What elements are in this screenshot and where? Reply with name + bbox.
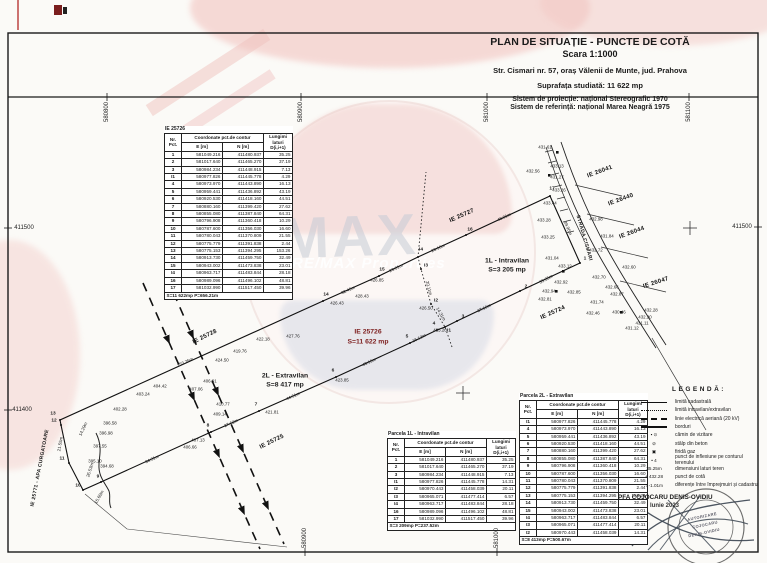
table-cell: 411436.892 xyxy=(578,433,619,440)
table-cell: 411465.270 xyxy=(223,159,264,166)
table-row: 3580984.234411448.9157.13 xyxy=(165,166,293,173)
coord-table-1l-title: Parcela 1L - Intravilan xyxy=(388,431,516,437)
table-row: 1581049.216411480.93735.25 xyxy=(165,151,293,158)
table-row: 8580855.080411387.84064.31 xyxy=(165,211,293,218)
table-cell: 411360.418 xyxy=(578,463,619,470)
table-row: 17581032.990411517.45039.96 xyxy=(165,285,293,292)
table-cell: 4.29 xyxy=(264,174,293,181)
coord-table-1l: Parcela 1L - Intravilan Nr. Pct. Coordon… xyxy=(387,431,516,531)
table-cell: 411391.838 xyxy=(223,240,264,247)
table-row: 10580787.600411356.03016.60 xyxy=(520,470,648,477)
leader-line xyxy=(85,494,287,547)
table-row: I4580963.717411483.84428.18 xyxy=(388,501,516,508)
table-cell: 580970.443 xyxy=(405,486,446,493)
table-cell: 580973.970 xyxy=(537,426,578,433)
table-cell: 411387.840 xyxy=(578,455,619,462)
table-cell: 3 xyxy=(388,471,405,478)
table-cell: 411473.838 xyxy=(223,262,264,269)
coord-table: Nr. Pct. Coordonate pct.de contur Lungim… xyxy=(519,400,648,545)
table-cell: 411391.838 xyxy=(578,485,619,492)
col-header-nr: Nr. Pct. xyxy=(165,134,182,152)
legend-symbol-solid-icon xyxy=(636,402,672,403)
table-cell: 6.57 xyxy=(487,493,516,500)
table-cell: 411436.892 xyxy=(223,188,264,195)
table-row: 1581049.216411480.93735.25 xyxy=(388,456,516,463)
table-row: 17581032.990411517.45039.96 xyxy=(388,516,516,523)
table-cell: 16.60 xyxy=(264,225,293,232)
table-cell: 411394.295 xyxy=(223,248,264,255)
table-cell: I4 xyxy=(388,501,405,508)
table-cell: 580963.717 xyxy=(182,270,223,277)
col-header-lung: Lungimi laturi D(i,i+1) xyxy=(487,439,516,457)
legend-symbol-text-icon: ▣ xyxy=(636,449,672,455)
legend-item-label: dimensiuni laturi teren xyxy=(672,466,724,472)
col-header-lung: Lungimi laturi D(i,i+1) xyxy=(264,134,293,152)
coord-table-main: IE 25726 Nr. Pct. Coordonate pct.de cont… xyxy=(164,126,293,300)
table-row: 6580920.530411418.16044.51 xyxy=(520,441,648,448)
table-cell: 35.25 xyxy=(264,151,293,158)
coord-table: Nr. Pct. Coordonate pct.de contur Lungim… xyxy=(164,133,293,300)
table-row: I3580965.071411477.4146.57 xyxy=(388,493,516,500)
table-cell: 411399.420 xyxy=(223,203,264,210)
table-cell: 580796.908 xyxy=(182,218,223,225)
table-cell: 35.25 xyxy=(487,456,516,463)
table-row: I1580977.826411445.77814.31 xyxy=(388,479,516,486)
legend-item-label: punct de inflexiune pe conturul terenulu… xyxy=(672,454,762,466)
table-cell: 580977.826 xyxy=(182,174,223,181)
col-header-coord: Coordonate pct.de contur xyxy=(405,439,487,448)
table-cell: 580775.779 xyxy=(537,485,578,492)
table-cell: 411483.844 xyxy=(223,270,264,277)
legend-title: LEGENDĂ: xyxy=(636,386,762,393)
legend-symbol-text-icon: ⊘ xyxy=(636,441,672,447)
scan-edge-mark xyxy=(17,0,19,30)
table-cell: 28.18 xyxy=(487,501,516,508)
table-cell: 7.13 xyxy=(487,471,516,478)
table-cell: 580913.730 xyxy=(537,500,578,507)
plan-title: PLAN DE SITUAȚIE - PUNCTE DE COTĂ xyxy=(420,36,760,48)
table-cell: 11 xyxy=(520,478,537,485)
table-cell: 48.81 xyxy=(264,277,293,284)
table-cell: 411496.102 xyxy=(223,277,264,284)
table-cell: 411370.809 xyxy=(223,233,264,240)
table-cell: 411448.915 xyxy=(446,471,487,478)
table-cell: I1 xyxy=(388,479,405,486)
table-cell: 21.55 xyxy=(264,233,293,240)
table-cell: 411443.890 xyxy=(223,181,264,188)
table-cell: 2.44 xyxy=(264,240,293,247)
table-row: 8580855.080411387.84064.31 xyxy=(520,455,648,462)
table-cell: 580775.779 xyxy=(182,240,223,247)
table-cell: 580977.826 xyxy=(537,418,578,425)
table-cell: 411448.915 xyxy=(223,166,264,173)
intravilan-divider xyxy=(418,172,452,347)
legend-item-label: punct de cotă xyxy=(672,474,705,480)
table-row: 11580780.043411370.80921.55 xyxy=(520,478,648,485)
table-cell: 580943.002 xyxy=(182,262,223,269)
col-header-e: E [m] xyxy=(182,142,223,151)
coord-table-2l-title: Parcela 2L - Extravilan xyxy=(520,393,648,399)
table-cell: 23.01 xyxy=(619,507,648,514)
table-cell: 6 xyxy=(520,441,537,448)
table-cell: 16 xyxy=(388,508,405,515)
power-line xyxy=(143,278,284,549)
table-cell: 10 xyxy=(520,470,537,477)
table-cell: 580959.441 xyxy=(182,188,223,195)
table-cell: 27.62 xyxy=(264,203,293,210)
table-cell: 411459.750 xyxy=(223,255,264,262)
table-cell: 580775.153 xyxy=(182,248,223,255)
table-cell: 411458.039 xyxy=(578,529,619,536)
curb-hatch xyxy=(545,150,574,233)
table-cell: 7.13 xyxy=(264,166,293,173)
surveyor-name: PFA COJOCARU DENIS-OVIDIU xyxy=(618,494,713,501)
table-cell: 411445.778 xyxy=(578,418,619,425)
table-cell: 580855.080 xyxy=(182,211,223,218)
table-cell: 5 xyxy=(165,188,182,195)
table-cell: 14 xyxy=(165,255,182,262)
table-cell: 580880.160 xyxy=(182,203,223,210)
table-row: I1580977.826411445.7784.29 xyxy=(165,174,293,181)
table-cell: I1 xyxy=(520,418,537,425)
legend-item-label: limită intravilan/extravilan xyxy=(672,407,731,413)
table-cell: 6.57 xyxy=(619,515,648,522)
table-cell: 580780.043 xyxy=(182,233,223,240)
table-row: 3580984.234411448.9157.13 xyxy=(388,471,516,478)
table-row: I2580970.443411458.03920.11 xyxy=(388,486,516,493)
table-cell: 580855.080 xyxy=(537,455,578,462)
table-cell: 411496.102 xyxy=(446,508,487,515)
table-cell: I4 xyxy=(165,270,182,277)
table-cell: 1 xyxy=(165,151,182,158)
table-cell: 411360.418 xyxy=(223,218,264,225)
plan-area: Suprafața studiată: 11 622 mp xyxy=(420,81,760,90)
table-cell: 581017.640 xyxy=(182,159,223,166)
table-row: 13580775.153411394.295153.26 xyxy=(165,248,293,255)
table-cell: 12 xyxy=(165,240,182,247)
table-cell: 2 xyxy=(165,159,182,166)
table-cell: 580920.530 xyxy=(537,441,578,448)
table-cell: 580775.153 xyxy=(537,492,578,499)
table-cell: I3 xyxy=(520,522,537,529)
table-cell: 15 xyxy=(165,262,182,269)
table-footer: S=3 209mp P=237.52m xyxy=(388,523,516,530)
table-cell: 64.31 xyxy=(264,211,293,218)
legend-item-label: borduri xyxy=(672,424,691,430)
table-row: 15580943.002411473.83823.01 xyxy=(520,507,648,514)
table-cell: 411465.270 xyxy=(446,464,487,471)
table-cell: 580913.730 xyxy=(182,255,223,262)
table-cell: 411445.778 xyxy=(223,174,264,181)
table-row: 7580880.160411399.42027.62 xyxy=(520,448,648,455)
table-cell: 580977.826 xyxy=(405,479,446,486)
table-cell: 39.96 xyxy=(264,285,293,292)
table-cell: 43.19 xyxy=(264,188,293,195)
table-cell: 581032.990 xyxy=(182,285,223,292)
table-row: 10580787.600411356.03016.60 xyxy=(165,225,293,232)
table-cell: 17 xyxy=(388,516,405,523)
plan-sheet: RE/MAX RE/MAX Properties xyxy=(0,0,767,563)
table-cell: 581049.216 xyxy=(182,151,223,158)
table-cell: I2 xyxy=(520,529,537,536)
table-cell: 39.96 xyxy=(487,516,516,523)
table-cell: 581032.990 xyxy=(405,516,446,523)
table-cell: 2 xyxy=(388,464,405,471)
legend-item-label: diferențe între împrejmuiri și cadastru xyxy=(672,482,758,488)
table-cell: 16.13 xyxy=(264,181,293,188)
table-cell: 411445.778 xyxy=(446,479,487,486)
table-row: I1580977.826411445.7784.29 xyxy=(520,418,648,425)
table-cell: 580787.600 xyxy=(537,470,578,477)
plan-address: Str. Cismari nr. 57, oraș Vălenii de Mun… xyxy=(420,66,760,75)
table-cell: 10 xyxy=(165,225,182,232)
table-cell: 411480.937 xyxy=(446,456,487,463)
legend-item: limită intravilan/extravilan xyxy=(636,406,762,414)
legend-item: + 432.28punct de cotă xyxy=(636,473,762,481)
table-cell: 411458.039 xyxy=(446,486,487,493)
table-cell: 580780.043 xyxy=(537,478,578,485)
table-cell: 20.11 xyxy=(487,486,516,493)
corner-mark-black xyxy=(63,7,67,14)
table-row: I4580963.717411483.84428.18 xyxy=(165,270,293,277)
table-cell: 580959.441 xyxy=(537,433,578,440)
table-cell: 411517.450 xyxy=(446,516,487,523)
table-cell: 580943.002 xyxy=(537,507,578,514)
table-cell: 411483.844 xyxy=(446,501,487,508)
table-cell: 411459.750 xyxy=(578,500,619,507)
legend-symbol-dotted-icon xyxy=(636,410,672,411)
table-cell: 411418.160 xyxy=(223,196,264,203)
table-row: I3580965.071411477.41420.11 xyxy=(520,522,648,529)
table-cell: 11 xyxy=(165,233,182,240)
table-cell: 411418.160 xyxy=(578,441,619,448)
table-cell: 8 xyxy=(165,211,182,218)
table-cell: 9 xyxy=(165,218,182,225)
table-cell: 581049.216 xyxy=(405,456,446,463)
table-cell: 411480.937 xyxy=(223,151,264,158)
col-header-nr: Nr. Pct. xyxy=(388,439,405,457)
table-cell: 44.51 xyxy=(264,196,293,203)
table-cell: I1 xyxy=(165,174,182,181)
legend-item: • 4punct de inflexiune pe conturul teren… xyxy=(636,456,762,464)
table-footer: S=11 622mp P=656.21m xyxy=(165,292,293,299)
table-cell: 411477.414 xyxy=(578,522,619,529)
table-cell: 580984.234 xyxy=(182,166,223,173)
table-cell: I4 xyxy=(520,515,537,522)
col-header-coord: Coordonate pct.de contur xyxy=(537,401,619,410)
table-cell: 16 xyxy=(165,277,182,284)
table-row: 15580943.002411473.83823.01 xyxy=(165,262,293,269)
plan-date: Iunie 2023 xyxy=(650,503,679,509)
table-row: 14580913.730411459.75032.49 xyxy=(165,255,293,262)
col-header-e: E [m] xyxy=(537,409,578,418)
table-row: I4580963.717411483.8446.57 xyxy=(520,515,648,522)
table-cell: 580989.096 xyxy=(405,508,446,515)
table-cell: 48.81 xyxy=(487,508,516,515)
table-cell: 3 xyxy=(165,166,182,173)
legend-item-label: cămin de vizitare xyxy=(672,432,713,438)
table-cell: 580796.908 xyxy=(537,463,578,470)
table-cell: 411394.295 xyxy=(578,492,619,499)
table-cell: 580965.071 xyxy=(405,493,446,500)
corner-mark-red xyxy=(54,5,62,15)
table-row: 12580775.779411391.8382.44 xyxy=(520,485,648,492)
table-row: 2581017.640411465.27037.19 xyxy=(165,159,293,166)
col-header-n: N [m] xyxy=(578,409,619,418)
table-cell: 580880.160 xyxy=(537,448,578,455)
table-cell: 10.29 xyxy=(264,218,293,225)
col-header-n: N [m] xyxy=(223,142,264,151)
coord-table-2l: Parcela 2L - Extravilan Nr. Pct. Coordon… xyxy=(519,393,648,545)
manhole-symbols xyxy=(548,151,623,314)
legend-item-label: limită cadastrală xyxy=(672,399,711,405)
legend-symbol-dash-icon xyxy=(636,418,672,420)
table-cell: I2 xyxy=(388,486,405,493)
table-cell: 7 xyxy=(165,203,182,210)
table-row: I2580970.443411458.03914.31 xyxy=(520,529,648,536)
table-row: 12580775.779411391.8382.44 xyxy=(165,240,293,247)
plan-reference: Sistem de referință: național Marea Neag… xyxy=(420,104,760,111)
legend: LEGENDĂ: limită cadastralălimită intravi… xyxy=(636,386,762,489)
legend-symbol-text-icon: • 4 xyxy=(636,458,672,463)
table-cell: 411483.844 xyxy=(578,515,619,522)
table-cell: 12 xyxy=(520,485,537,492)
legend-item-label: stâlp din beton xyxy=(672,441,708,447)
table-cell: 6 xyxy=(165,196,182,203)
table-cell: 37.19 xyxy=(487,464,516,471)
legend-item: limită cadastrală xyxy=(636,398,762,406)
table-cell: 580963.717 xyxy=(537,515,578,522)
table-cell: 580965.071 xyxy=(537,522,578,529)
table-cell: 14.31 xyxy=(619,529,648,536)
table-row: 4580973.970411443.89016.13 xyxy=(165,181,293,188)
table-row: 9580796.908411360.41810.29 xyxy=(165,218,293,225)
table-cell: 15 xyxy=(520,507,537,514)
table-cell: 411517.450 xyxy=(223,285,264,292)
road-edges xyxy=(546,142,666,348)
table-cell: 9 xyxy=(520,463,537,470)
table-cell: 23.01 xyxy=(264,262,293,269)
table-row: 2581017.640411465.27037.19 xyxy=(388,464,516,471)
table-cell: 411370.809 xyxy=(578,478,619,485)
table-row: 16580989.096411496.10248.81 xyxy=(388,508,516,515)
legend-symbol-text-icon: 35.25m xyxy=(636,466,672,471)
table-cell: 580973.970 xyxy=(182,181,223,188)
table-cell: 580963.717 xyxy=(405,501,446,508)
col-header-n: N [m] xyxy=(446,447,487,456)
table-row: 11580780.043411370.80921.55 xyxy=(165,233,293,240)
table-cell: 411473.838 xyxy=(578,507,619,514)
table-cell: 7 xyxy=(520,448,537,455)
table-cell: 580970.443 xyxy=(537,529,578,536)
table-cell: 5 xyxy=(520,433,537,440)
legend-symbol-text-icon: ↕ -1.01m xyxy=(636,483,672,488)
table-cell: 14.31 xyxy=(487,479,516,486)
col-header-nr: Nr. Pct. xyxy=(520,401,537,419)
table-row: 6580920.530411418.16044.51 xyxy=(165,196,293,203)
table-cell: 153.26 xyxy=(264,248,293,255)
table-cell: 411443.890 xyxy=(578,426,619,433)
table-cell: 28.18 xyxy=(264,270,293,277)
table-cell: 580920.530 xyxy=(182,196,223,203)
table-cell: 1 xyxy=(388,456,405,463)
plan-projection: Sistem de proiecție: național Stereograf… xyxy=(420,96,760,103)
table-cell: 411356.030 xyxy=(223,225,264,232)
table-cell: 13 xyxy=(520,492,537,499)
table-row: 5580959.441411436.89243.19 xyxy=(165,188,293,195)
table-cell: 8 xyxy=(520,455,537,462)
table-footer: S=8 413mp P=500.67m xyxy=(520,537,648,544)
table-row: 5580959.441411436.89243.19 xyxy=(520,433,648,440)
legend-symbol-thick-icon xyxy=(636,426,672,428)
table-cell: 4 xyxy=(520,426,537,433)
table-row: 7580880.160411399.42027.62 xyxy=(165,203,293,210)
table-cell: 580984.234 xyxy=(405,471,446,478)
table-cell: I3 xyxy=(388,493,405,500)
legend-item: ⊘stâlp din beton xyxy=(636,439,762,447)
table-cell: 411387.840 xyxy=(223,211,264,218)
col-header-coord: Coordonate pct.de contur xyxy=(182,134,264,143)
table-cell: 4 xyxy=(165,181,182,188)
col-header-e: E [m] xyxy=(405,447,446,456)
legend-item: borduri xyxy=(636,423,762,431)
table-cell: 20.11 xyxy=(619,522,648,529)
table-cell: 411399.420 xyxy=(578,448,619,455)
plan-scale: Scara 1:1000 xyxy=(420,49,760,59)
table-cell: 13 xyxy=(165,248,182,255)
table-cell: 580989.096 xyxy=(182,277,223,284)
table-cell: 37.19 xyxy=(264,159,293,166)
table-cell: 411477.414 xyxy=(446,493,487,500)
table-row: 16580989.096411496.10248.81 xyxy=(165,277,293,284)
table-row: 4580973.970411443.89016.13 xyxy=(520,426,648,433)
title-block: PLAN DE SITUAȚIE - PUNCTE DE COTĂ Scara … xyxy=(420,36,760,111)
table-cell: 14 xyxy=(520,500,537,507)
legend-symbol-text-icon: + 432.28 xyxy=(636,474,672,479)
table-cell: 580787.600 xyxy=(182,225,223,232)
legend-item-label: linie electrică aeriană (20 kV) xyxy=(672,416,739,422)
coord-table-main-title: IE 25726 xyxy=(165,126,293,132)
legend-item: ▪ ⊙cămin de vizitare xyxy=(636,431,762,439)
table-row: 9580796.908411360.41810.29 xyxy=(520,463,648,470)
table-cell: 581017.640 xyxy=(405,464,446,471)
grid-cross xyxy=(456,221,697,400)
legend-item: linie electrică aeriană (20 kV) xyxy=(636,415,762,423)
coord-table: Nr. Pct. Coordonate pct.de contur Lungim… xyxy=(387,438,516,531)
legend-item: ↕ -1.01mdiferențe între împrejmuiri și c… xyxy=(636,481,762,489)
table-cell: 32.49 xyxy=(264,255,293,262)
table-cell: 17 xyxy=(165,285,182,292)
table-cell: 411356.030 xyxy=(578,470,619,477)
old-fence-line xyxy=(96,433,111,508)
legend-symbol-text-icon: ▪ ⊙ xyxy=(636,432,672,438)
